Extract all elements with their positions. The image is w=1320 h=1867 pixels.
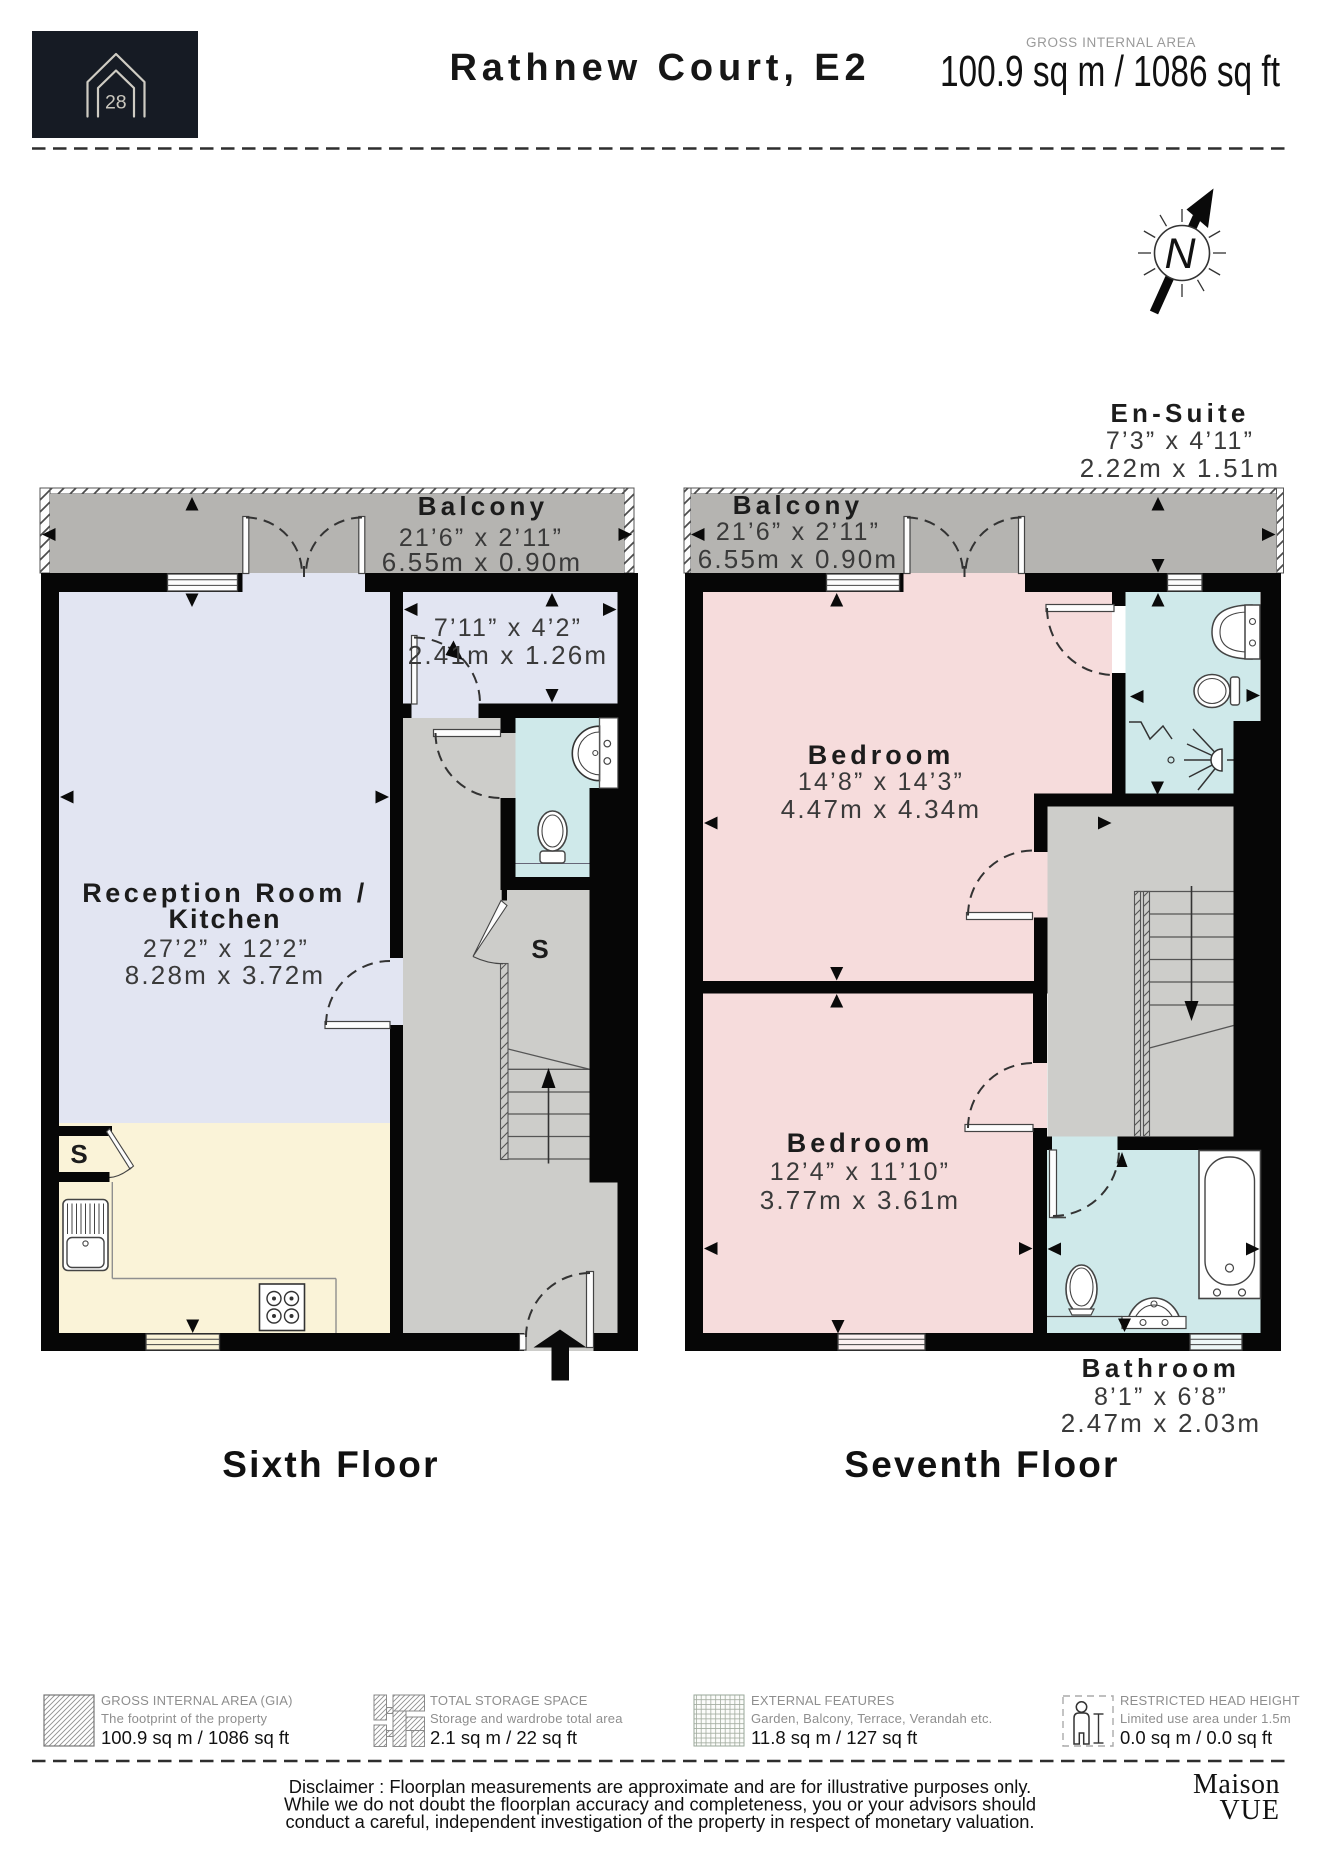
svg-text:Balcony: Balcony xyxy=(733,490,864,520)
svg-text:TOTAL STORAGE SPACE: TOTAL STORAGE SPACE xyxy=(430,1693,588,1708)
svg-text:Kitchen: Kitchen xyxy=(168,904,281,934)
svg-text:6.55m x 0.90m: 6.55m x 0.90m xyxy=(698,544,899,574)
svg-text:conduct a careful, independent: conduct a careful, independent investiga… xyxy=(286,1811,1035,1832)
svg-text:2.22m x 1.51m: 2.22m x 1.51m xyxy=(1080,453,1281,483)
svg-text:12’4” x 11’10”: 12’4” x 11’10” xyxy=(770,1158,950,1186)
svg-text:4.47m x 4.34m: 4.47m x 4.34m xyxy=(781,794,982,824)
svg-text:Bedroom: Bedroom xyxy=(787,1128,934,1158)
svg-text:Seventh Floor: Seventh Floor xyxy=(844,1444,1119,1485)
svg-text:Bedroom: Bedroom xyxy=(808,740,955,770)
svg-text:Limited use area under 1.5m: Limited use area under 1.5m xyxy=(1120,1711,1291,1726)
svg-text:2.41m x 1.26m: 2.41m x 1.26m xyxy=(408,640,609,670)
svg-text:100.9 sq m / 1086 sq ft: 100.9 sq m / 1086 sq ft xyxy=(940,48,1280,96)
svg-text:3.77m x 3.61m: 3.77m x 3.61m xyxy=(760,1185,961,1215)
svg-text:GROSS INTERNAL AREA (GIA): GROSS INTERNAL AREA (GIA) xyxy=(101,1693,293,1708)
svg-text:6.55m x 0.90m: 6.55m x 0.90m xyxy=(382,547,583,577)
svg-text:Bathroom: Bathroom xyxy=(1082,1353,1241,1383)
svg-text:The footprint of the property: The footprint of the property xyxy=(101,1711,268,1726)
svg-text:2.1 sq m / 22 sq ft: 2.1 sq m / 22 sq ft xyxy=(430,1727,577,1748)
svg-text:11.8 sq m / 127 sq ft: 11.8 sq m / 127 sq ft xyxy=(751,1727,917,1748)
svg-text:En-Suite: En-Suite xyxy=(1110,398,1249,428)
svg-text:N: N xyxy=(1164,230,1196,278)
svg-text:27’2” x 12’2”: 27’2” x 12’2” xyxy=(143,935,309,963)
svg-text:Storage and wardrobe total are: Storage and wardrobe total area xyxy=(430,1711,623,1726)
svg-text:RESTRICTED HEAD HEIGHT: RESTRICTED HEAD HEIGHT xyxy=(1120,1693,1300,1708)
svg-text:8’1” x 6’8”: 8’1” x 6’8” xyxy=(1094,1383,1228,1411)
svg-text:Garden, Balcony, Terrace, Vera: Garden, Balcony, Terrace, Verandah etc. xyxy=(751,1711,992,1726)
svg-text:21’6” x 2’11”: 21’6” x 2’11” xyxy=(716,518,880,546)
svg-text:VUE: VUE xyxy=(1219,1795,1280,1826)
svg-text:7’11” x 4’2”: 7’11” x 4’2” xyxy=(434,614,582,642)
svg-text:Sixth Floor: Sixth Floor xyxy=(222,1444,439,1485)
svg-text:2.47m x 2.03m: 2.47m x 2.03m xyxy=(1061,1408,1262,1438)
svg-text:S: S xyxy=(531,934,548,964)
svg-text:100.9 sq m / 1086 sq ft: 100.9 sq m / 1086 sq ft xyxy=(101,1727,289,1748)
svg-text:EXTERNAL FEATURES: EXTERNAL FEATURES xyxy=(751,1693,895,1708)
svg-text:S: S xyxy=(70,1139,87,1169)
svg-text:0.0 sq m / 0.0 sq ft: 0.0 sq m / 0.0 sq ft xyxy=(1120,1727,1272,1748)
svg-text:8.28m x 3.72m: 8.28m x 3.72m xyxy=(125,960,326,990)
svg-text:7’3” x 4’11”: 7’3” x 4’11” xyxy=(1106,427,1254,455)
svg-text:Rathnew Court, E2: Rathnew Court, E2 xyxy=(449,47,870,89)
svg-text:14’8” x 14’3”: 14’8” x 14’3” xyxy=(798,768,964,796)
svg-text:28: 28 xyxy=(105,92,127,114)
svg-text:Balcony: Balcony xyxy=(418,491,549,521)
